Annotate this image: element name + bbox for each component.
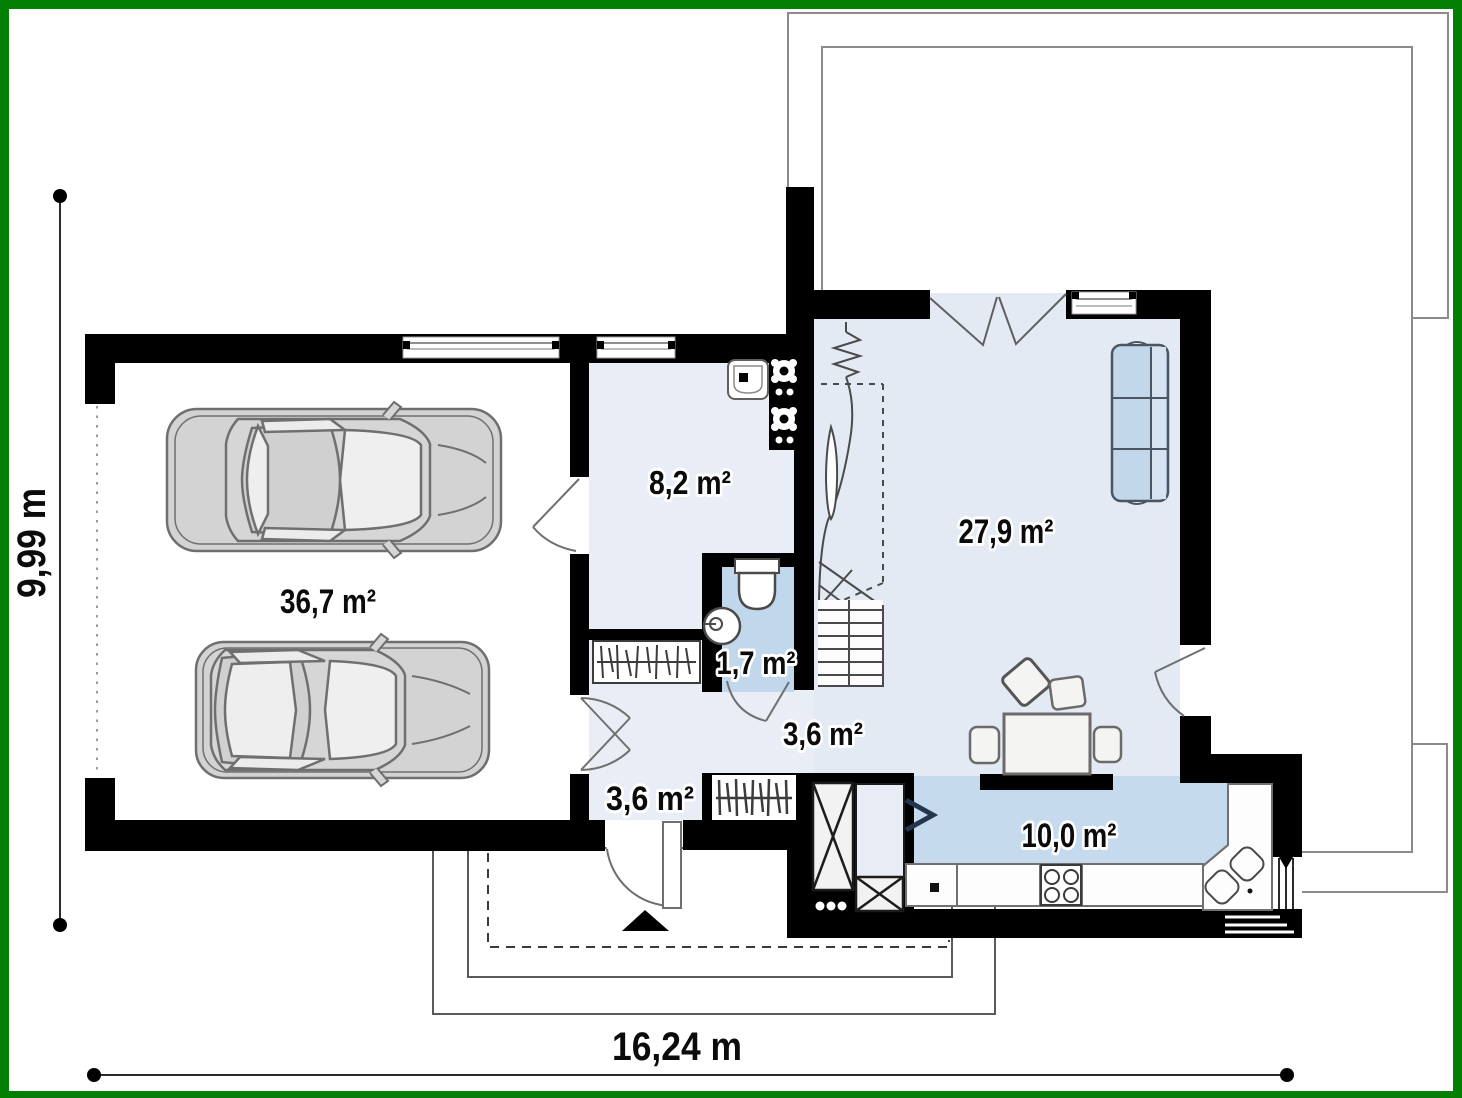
svg-text:8,2 m²: 8,2 m²: [649, 464, 731, 501]
svg-text:3,6 m²: 3,6 m²: [783, 716, 863, 752]
svg-text:10,0 m²: 10,0 m²: [1022, 817, 1117, 855]
svg-text:3,6 m²: 3,6 m²: [606, 780, 694, 818]
svg-text:27,9 m²: 27,9 m²: [959, 513, 1054, 551]
svg-text:9,99 m: 9,99 m: [10, 488, 54, 598]
svg-text:16,24 m: 16,24 m: [612, 1025, 742, 1069]
svg-text:1,7 m²: 1,7 m²: [717, 645, 796, 681]
svg-text:36,7 m²: 36,7 m²: [280, 583, 376, 621]
